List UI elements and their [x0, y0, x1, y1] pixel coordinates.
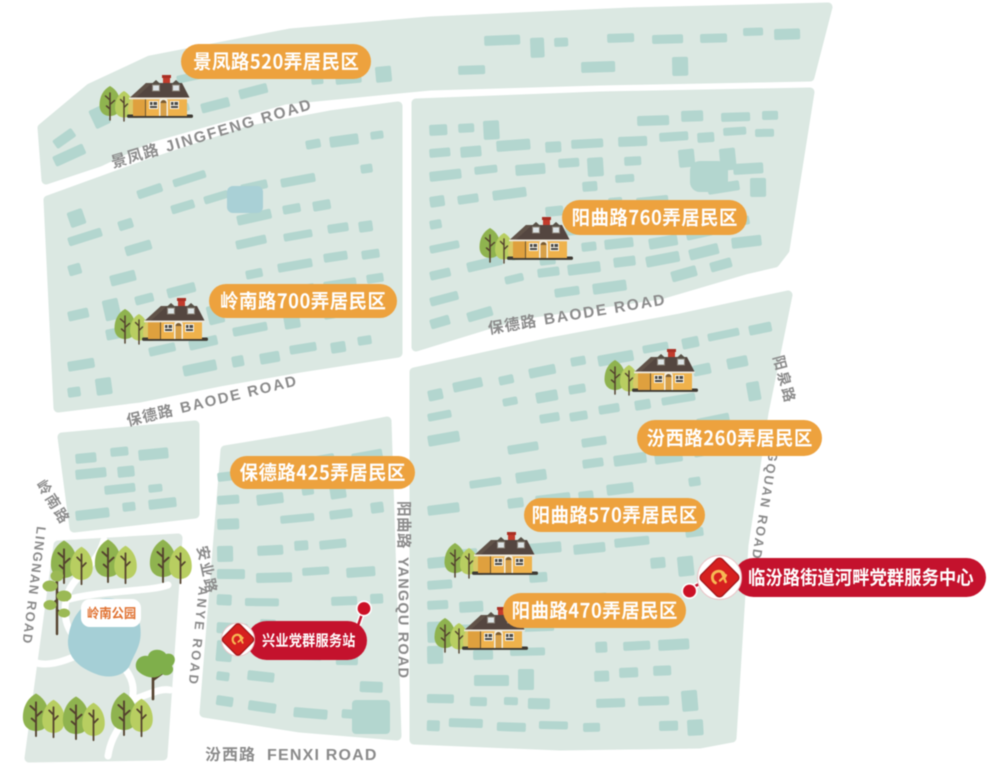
svg-text:YANGQU ROAD: YANGQU ROAD	[395, 557, 411, 679]
svg-text:FENXI ROAD: FENXI ROAD	[267, 747, 378, 764]
